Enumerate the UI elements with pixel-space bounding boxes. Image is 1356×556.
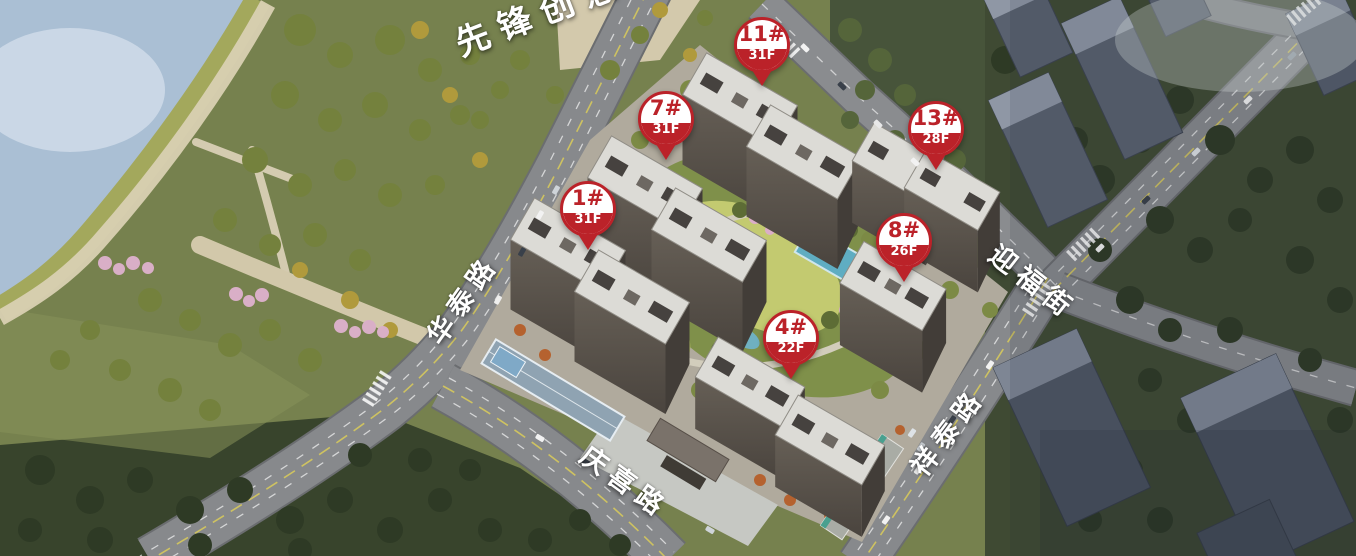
pin-building-number: 4#	[766, 313, 816, 342]
pin-pointer	[656, 144, 676, 160]
pin-building-number: 7#	[641, 94, 691, 123]
pin-pointer	[752, 70, 772, 86]
pin-head: 11# 31F	[734, 17, 790, 73]
building-pin-4[interactable]: 4# 22F	[763, 310, 819, 379]
aerial-site-plan: 先锋创意 华泰路 迎福街 祥泰路 庆喜路 1# 31F 4# 22F 7# 31…	[0, 0, 1356, 556]
pin-pointer	[926, 154, 946, 170]
building-pin-8[interactable]: 8# 26F	[876, 213, 932, 282]
pin-building-number: 11#	[737, 20, 787, 49]
pin-floor-count: 28F	[911, 133, 961, 154]
pin-floor-count: 22F	[766, 342, 816, 363]
pin-floor-count: 26F	[879, 245, 929, 266]
pin-building-number: 1#	[563, 184, 613, 213]
pin-head: 7# 31F	[638, 91, 694, 147]
pin-floor-count: 31F	[563, 213, 613, 234]
building-pin-13[interactable]: 13# 28F	[908, 101, 964, 170]
building-pin-7[interactable]: 7# 31F	[638, 91, 694, 160]
pin-pointer	[578, 234, 598, 250]
pin-pointer	[781, 363, 801, 379]
pin-head: 4# 22F	[763, 310, 819, 366]
building-pin-1[interactable]: 1# 31F	[560, 181, 616, 250]
pin-building-number: 8#	[879, 216, 929, 245]
pin-head: 8# 26F	[876, 213, 932, 269]
pin-floor-count: 31F	[641, 123, 691, 144]
building-pin-11[interactable]: 11# 31F	[734, 17, 790, 86]
pin-head: 13# 28F	[908, 101, 964, 157]
pin-head: 1# 31F	[560, 181, 616, 237]
pin-building-number: 13#	[911, 104, 961, 133]
aerial-render-scene	[0, 0, 1356, 556]
pin-pointer	[894, 266, 914, 282]
pin-floor-count: 31F	[737, 49, 787, 70]
